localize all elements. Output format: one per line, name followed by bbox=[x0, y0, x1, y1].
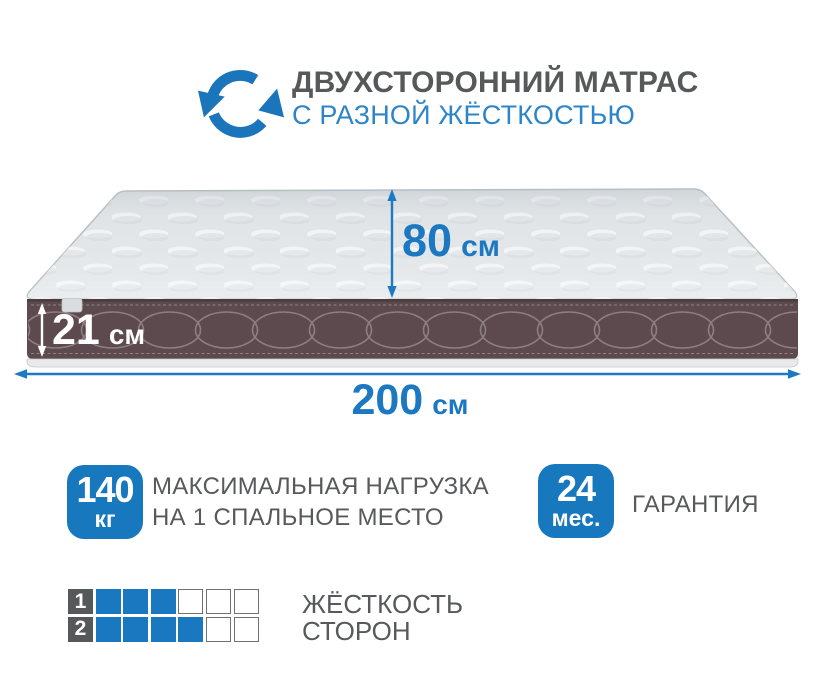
depth-dimension-label: 80см bbox=[402, 215, 500, 267]
firmness-cell bbox=[234, 589, 259, 614]
mattress-illustration bbox=[0, 175, 816, 387]
firmness-cell bbox=[151, 589, 176, 614]
firmness-cell bbox=[96, 617, 121, 642]
firmness-cell bbox=[123, 589, 148, 614]
firmness-row-side1: 1 bbox=[68, 589, 259, 614]
warranty-value: 24 bbox=[557, 472, 595, 506]
length-dimension-label: 200см bbox=[0, 376, 816, 425]
header: ДВУХСТОРОННИЙ МАТРАС С РАЗНОЙ ЖЁСТКОСТЬЮ bbox=[292, 66, 772, 131]
side-number-badge: 1 bbox=[68, 589, 93, 614]
side-number-badge: 2 bbox=[68, 617, 93, 642]
firmness-cell bbox=[178, 617, 203, 642]
firmness-cell bbox=[123, 617, 148, 642]
firmness-caption-line1: ЖЁСТКОСТЬ bbox=[302, 590, 463, 618]
depth-unit: см bbox=[461, 230, 500, 263]
firmness-scale-side1 bbox=[96, 589, 259, 614]
height-unit: см bbox=[109, 319, 145, 350]
firmness-cell bbox=[96, 589, 121, 614]
height-value: 21 bbox=[52, 306, 100, 354]
firmness-cell bbox=[234, 617, 259, 642]
rotate-arrows-icon bbox=[197, 60, 286, 149]
firmness-cell bbox=[151, 617, 176, 642]
length-value: 200 bbox=[351, 376, 423, 424]
firmness-cell bbox=[206, 617, 231, 642]
length-unit: см bbox=[432, 389, 468, 420]
firmness-caption-line2: СТОРОН bbox=[302, 617, 411, 645]
page-subtitle: С РАЗНОЙ ЖЁСТКОСТЬЮ bbox=[292, 100, 772, 131]
warranty-caption-line1: ГАРАНТИЯ bbox=[632, 489, 759, 520]
firmness-scale-side2 bbox=[96, 617, 259, 642]
page-title: ДВУХСТОРОННИЙ МАТРАС bbox=[292, 66, 772, 100]
mattress-bottom-piping bbox=[27, 359, 798, 367]
max-load-value: 140 bbox=[76, 473, 133, 507]
warranty-unit: мес. bbox=[552, 506, 601, 530]
max-load-caption-line2: НА 1 СПАЛЬНОЕ МЕСТО bbox=[152, 502, 489, 533]
depth-value: 80 bbox=[402, 215, 452, 266]
warranty-caption: ГАРАНТИЯ bbox=[632, 489, 759, 520]
firmness-row-side2: 2 bbox=[68, 617, 259, 642]
max-load-unit: кг bbox=[94, 507, 115, 531]
max-load-caption: МАКСИМАЛЬНАЯ НАГРУЗКА НА 1 СПАЛЬНОЕ МЕСТ… bbox=[152, 471, 489, 533]
firmness-cell bbox=[178, 589, 203, 614]
firmness-cell bbox=[206, 589, 231, 614]
max-load-caption-line1: МАКСИМАЛЬНАЯ НАГРУЗКА bbox=[152, 471, 489, 502]
warranty-badge: 24 мес. bbox=[538, 464, 614, 538]
height-dimension-label: 21см bbox=[52, 306, 145, 355]
max-load-badge: 140 кг bbox=[67, 465, 143, 539]
